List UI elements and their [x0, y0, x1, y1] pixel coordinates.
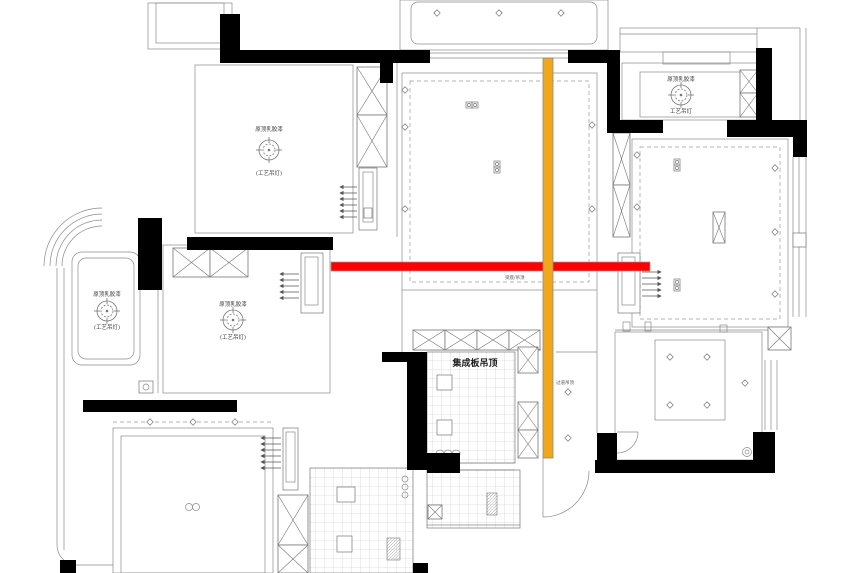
kitchen-ceiling-label: 集成板吊顶 [451, 357, 497, 369]
room-lamp-label: 工艺吊灯 [670, 107, 693, 115]
room-lamp-label: (工艺吊灯) [220, 333, 246, 341]
room-ceiling-label: 原顶乳胶漆 [255, 125, 283, 133]
ceiling-plan-drawing: 原顶乳胶漆 (工艺吊灯) 原顶乳胶漆 (工艺吊灯) 原顶乳胶漆 (工艺吊灯) 原… [0, 0, 860, 573]
room-lamp-label: (工艺吊灯) [256, 169, 282, 177]
ceiling-lamp-icon [94, 298, 120, 324]
ceiling-lamp-icon [220, 307, 246, 333]
room-ceiling-label: 原顶乳胶漆 [667, 75, 695, 83]
labels-layer: 原顶乳胶漆 (工艺吊灯) 原顶乳胶漆 (工艺吊灯) 原顶乳胶漆 (工艺吊灯) 原… [93, 75, 695, 386]
ac-vent-icon [280, 253, 323, 313]
ac-vent-icon [340, 168, 377, 230]
ceiling-lamp-icon [668, 82, 694, 108]
ac-vent-icon [261, 428, 298, 490]
ceiling-lamp-icon [256, 137, 282, 163]
beam-note: 梁底/吊顶 [505, 274, 525, 281]
room-lamp-label: (工艺吊灯) [94, 323, 120, 331]
room-ceiling-label: 原顶乳胶漆 [93, 290, 121, 298]
ceiling-plan-canvas: 原顶乳胶漆 (工艺吊灯) 原顶乳胶漆 (工艺吊灯) 原顶乳胶漆 (工艺吊灯) 原… [0, 0, 860, 573]
ceiling-lamp-icons [94, 82, 694, 333]
shaft-highlight-yellow [543, 58, 553, 458]
corridor-note: 过道吊顶 [556, 379, 574, 386]
room-ceiling-label: 原顶乳胶漆 [219, 300, 247, 308]
beam-highlight-red [331, 262, 650, 271]
